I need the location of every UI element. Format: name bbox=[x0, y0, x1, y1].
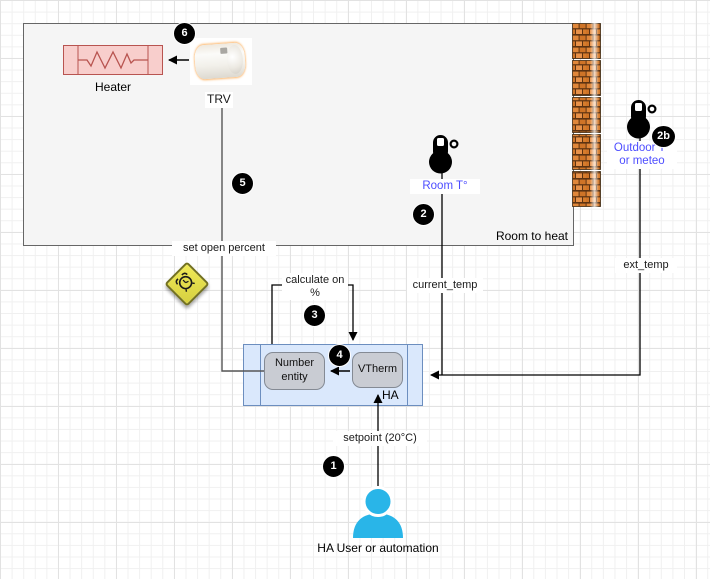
trv-valve-body bbox=[194, 42, 246, 79]
trv-image bbox=[190, 38, 252, 85]
label-setpoint: setpoint (20°C) bbox=[333, 431, 427, 446]
number-entity-label: Number entity bbox=[265, 357, 324, 385]
step-badge-2b: 2b bbox=[651, 125, 676, 148]
user-label: HA User or automation bbox=[303, 541, 453, 555]
label-ext-temp: ext_temp bbox=[615, 258, 677, 273]
step-badge-6: 6 bbox=[173, 22, 196, 45]
room-label: Room to heat bbox=[496, 229, 568, 243]
step-badge-5: 5 bbox=[231, 172, 254, 195]
heater-label: Heater bbox=[63, 80, 163, 94]
trv-label: TRV bbox=[205, 92, 233, 108]
trv-valve-display bbox=[220, 47, 227, 53]
diagram-canvas: Room to heat HA bbox=[0, 0, 710, 579]
vtherm-label: VTherm bbox=[358, 363, 397, 377]
user-icon bbox=[351, 486, 405, 538]
trv-valve-dial bbox=[226, 44, 244, 74]
number-entity-box: Number entity bbox=[264, 352, 325, 390]
room-temp-icon bbox=[427, 134, 459, 176]
step-badge-3: 3 bbox=[303, 304, 326, 327]
label-set-open-percent: set open percent bbox=[172, 241, 276, 256]
vtherm-box: VTherm bbox=[352, 352, 403, 388]
step-badge-4: 4 bbox=[328, 344, 351, 367]
room-temp-label: Room T° bbox=[410, 179, 480, 194]
ha-box-right-divider bbox=[407, 345, 408, 405]
ha-label: HA bbox=[382, 388, 399, 402]
label-current-temp: current_temp bbox=[407, 278, 483, 293]
step-badge-2: 2 bbox=[412, 203, 435, 226]
step-badge-1: 1 bbox=[322, 455, 345, 478]
ha-box-left-divider bbox=[260, 345, 261, 405]
heater-symbol bbox=[63, 45, 163, 75]
label-calculate-on-percent: calculate on % bbox=[282, 273, 348, 300]
brick-wall-image bbox=[572, 23, 601, 208]
